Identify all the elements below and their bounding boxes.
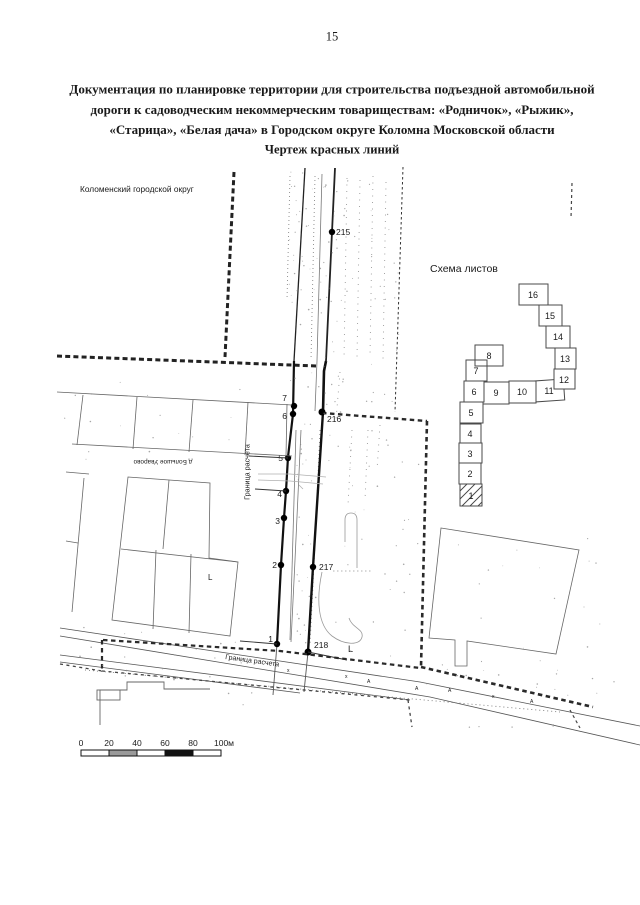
svg-text:40: 40 [132, 738, 142, 748]
svg-text:215: 215 [336, 227, 350, 237]
svg-text:7: 7 [473, 366, 478, 376]
svg-text:Коломенский городской округ: Коломенский городской округ [80, 184, 194, 194]
svg-text:L: L [348, 644, 353, 654]
svg-text:16: 16 [528, 290, 538, 300]
svg-text:13: 13 [560, 354, 570, 364]
svg-text:9: 9 [493, 388, 498, 398]
svg-text:4: 4 [467, 429, 472, 439]
svg-text:100м: 100м [214, 738, 234, 748]
svg-text:217: 217 [319, 562, 333, 572]
svg-text:7: 7 [282, 393, 287, 403]
svg-text:5: 5 [468, 408, 473, 418]
svg-text:1: 1 [468, 491, 473, 501]
svg-text:3: 3 [275, 516, 280, 526]
svg-text:6: 6 [471, 387, 476, 397]
svg-text:L: L [208, 573, 213, 582]
svg-text:218: 218 [314, 640, 328, 650]
svg-text:3: 3 [467, 449, 472, 459]
svg-text:15: 15 [545, 311, 555, 321]
svg-text:Документация по планировке тер: Документация по планировке территории дл… [69, 82, 595, 97]
svg-text:12: 12 [559, 375, 569, 385]
svg-text:11: 11 [544, 386, 553, 396]
svg-text:д Большое Уварово: д Большое Уварово [133, 458, 192, 465]
svg-text:14: 14 [553, 332, 563, 342]
svg-text:1: 1 [268, 634, 273, 644]
svg-text:Чертеж красных линий: Чертеж красных линий [265, 143, 400, 157]
svg-text:Граница расчета: Граница расчета [243, 444, 252, 500]
svg-text:80: 80 [188, 738, 198, 748]
svg-text:«Старица», «Белая дача» в Горо: «Старица», «Белая дача» в Городском окру… [109, 122, 555, 137]
svg-text:2: 2 [467, 469, 472, 479]
svg-text:8: 8 [486, 351, 491, 361]
svg-text:10: 10 [517, 387, 527, 397]
svg-text:216: 216 [327, 414, 341, 424]
svg-text:2: 2 [272, 560, 277, 570]
svg-text:15: 15 [326, 30, 339, 44]
svg-text:Схема листов: Схема листов [430, 263, 498, 275]
svg-text:20: 20 [104, 738, 114, 748]
svg-text:0: 0 [79, 738, 84, 748]
svg-text:дороги к садоводческим некомме: дороги к садоводческим некоммерческим то… [91, 102, 574, 117]
svg-text:60: 60 [160, 738, 170, 748]
